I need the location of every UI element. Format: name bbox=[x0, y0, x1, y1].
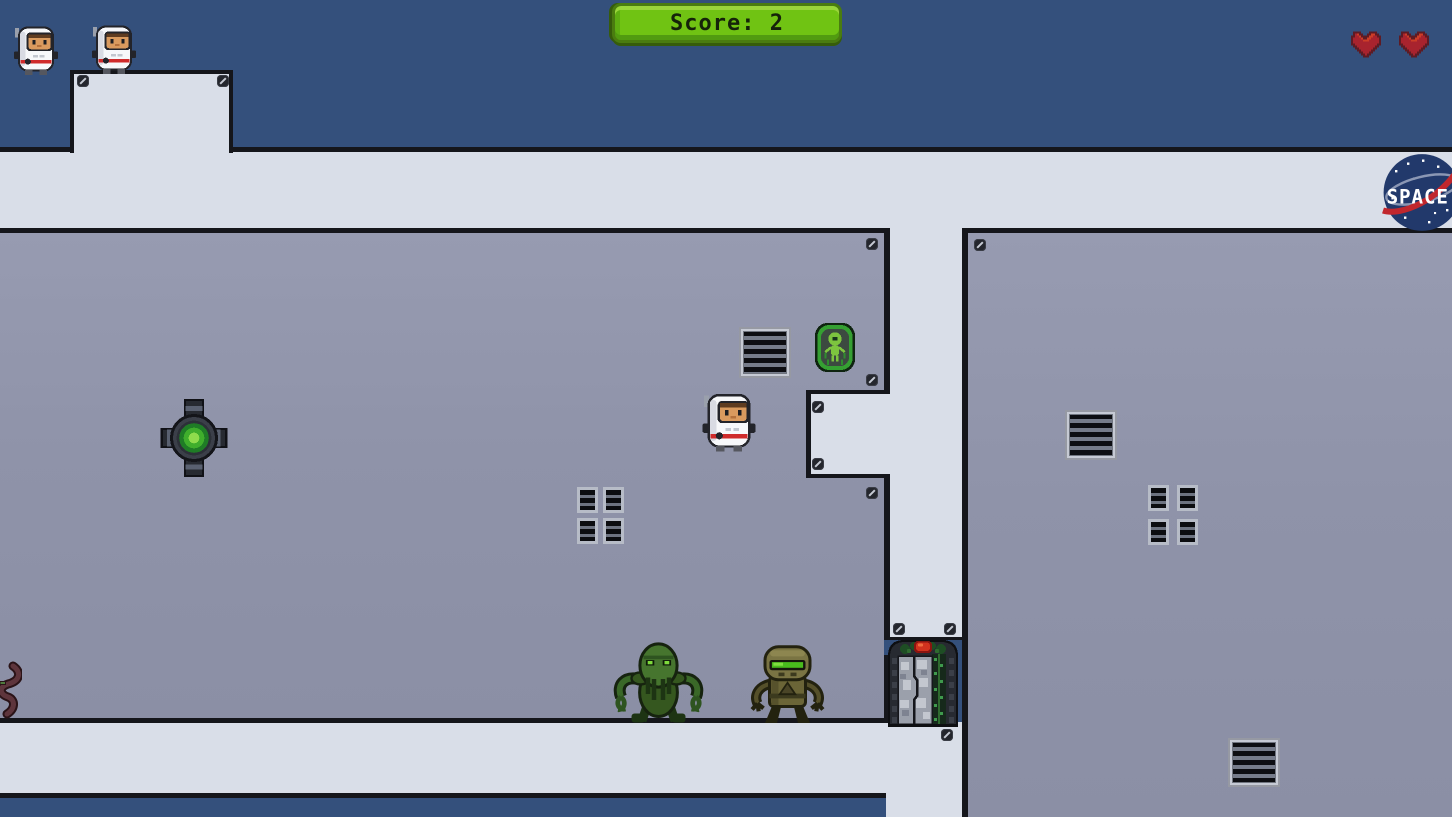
vent-small-icon bbox=[1177, 519, 1198, 545]
vent-small-icon bbox=[577, 518, 598, 544]
vent-small-icon bbox=[603, 518, 624, 544]
turret-mine-icon bbox=[160, 398, 228, 478]
score-label: Score: 2 bbox=[670, 11, 784, 36]
screw-icon bbox=[944, 623, 956, 635]
screw-icon bbox=[812, 401, 824, 413]
game-viewport[interactable]: Score: 2 SPACE bbox=[0, 0, 1452, 817]
screw-icon bbox=[812, 458, 824, 470]
room-right bbox=[962, 228, 1452, 817]
alien-soldier-sprite bbox=[745, 645, 830, 723]
screw-icon bbox=[974, 239, 986, 251]
tentacle-creature-sprite bbox=[0, 661, 22, 720]
vent-small-icon bbox=[1148, 485, 1169, 511]
wall-slab-top bbox=[70, 70, 233, 153]
score-badge: Score: 2 bbox=[612, 3, 842, 43]
space-agency-logo: SPACE bbox=[1380, 152, 1452, 232]
screw-icon bbox=[217, 75, 229, 87]
vent-small-icon bbox=[603, 487, 624, 513]
screw-icon bbox=[866, 238, 878, 250]
astronaut-life-icon bbox=[12, 25, 60, 76]
vent-small-icon bbox=[577, 487, 598, 513]
sealed-door-icon bbox=[888, 640, 958, 727]
heart-icon bbox=[1397, 26, 1431, 63]
screw-icon bbox=[866, 374, 878, 386]
vent-grill-icon bbox=[1228, 738, 1280, 787]
screw-icon bbox=[866, 487, 878, 499]
vent-grill-icon bbox=[1065, 410, 1117, 460]
corridor-bottom bbox=[0, 722, 890, 798]
corridor-top bbox=[0, 147, 1452, 233]
astronaut-life-icon bbox=[90, 24, 138, 75]
screw-icon bbox=[941, 729, 953, 741]
player-astronaut-sprite bbox=[700, 392, 758, 453]
alien-shield-poster-icon bbox=[812, 321, 858, 374]
logo-text: SPACE bbox=[1387, 186, 1449, 209]
screw-icon bbox=[77, 75, 89, 87]
vent-small-icon bbox=[1177, 485, 1198, 511]
alien-cthulhu-sprite bbox=[612, 640, 705, 724]
vent-small-icon bbox=[1148, 519, 1169, 545]
screw-icon bbox=[893, 623, 905, 635]
heart-icon bbox=[1349, 26, 1383, 63]
corridor-vertical bbox=[888, 233, 962, 642]
vent-grill-icon bbox=[739, 327, 791, 378]
